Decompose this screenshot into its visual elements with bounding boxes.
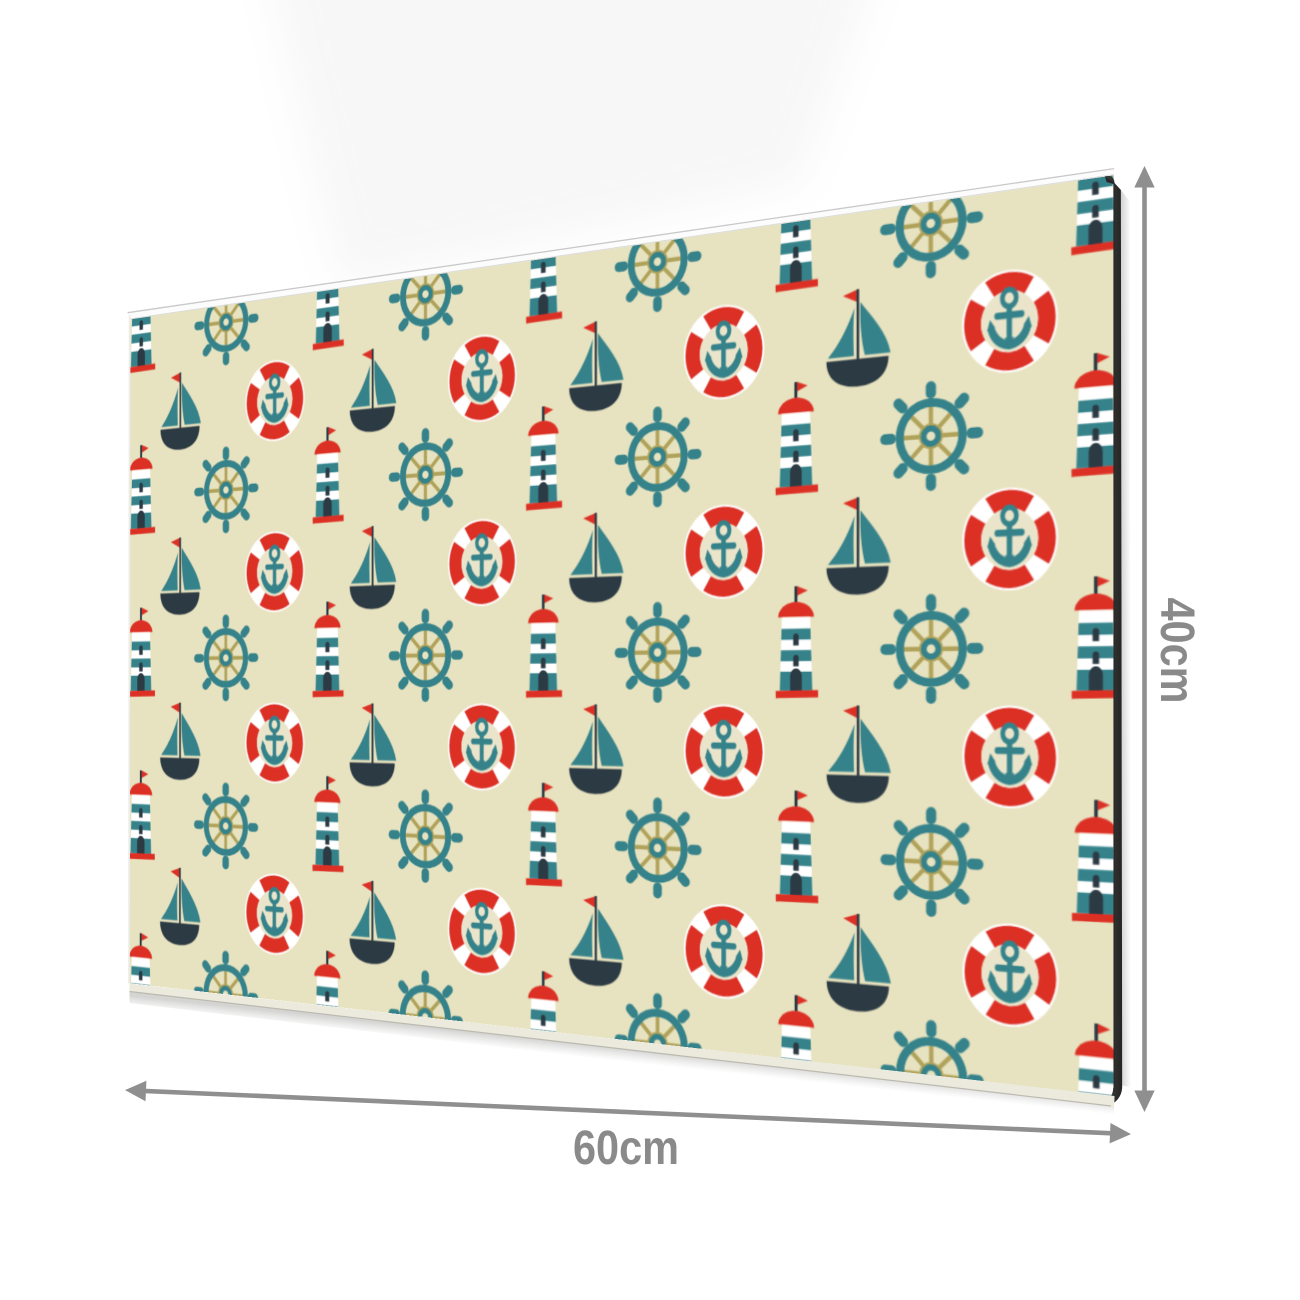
svg-text:40cm: 40cm <box>1150 598 1204 704</box>
svg-text:60cm: 60cm <box>573 1121 679 1175</box>
